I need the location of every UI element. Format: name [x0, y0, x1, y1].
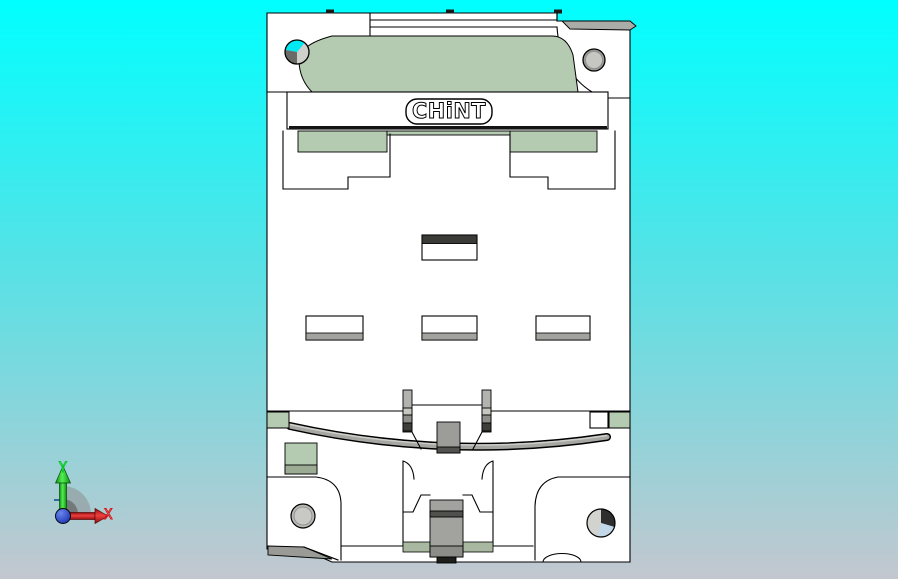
- axis-y-label: Y: [59, 460, 68, 476]
- contact-window-top: [422, 235, 477, 260]
- mounting-hole-bottom-right: [587, 509, 615, 537]
- armature-block: [437, 422, 460, 453]
- logo-band-groove: [289, 126, 607, 129]
- guide-post-left: [403, 390, 412, 432]
- side-tab-left: [267, 412, 289, 428]
- origin-ball: [56, 509, 71, 524]
- mounting-hole-top-right: [583, 49, 605, 71]
- side-slot-right: [590, 412, 608, 428]
- plunger: [430, 500, 463, 563]
- contact-window-right: [536, 316, 590, 340]
- bottom-green-strip-left: [403, 542, 430, 552]
- brand-text: CHiNT: [412, 99, 486, 123]
- contact-window-middle: [422, 316, 477, 340]
- guide-post-right: [482, 390, 491, 432]
- top-green-panel: [299, 36, 578, 92]
- cad-viewport[interactable]: CHiNT: [0, 0, 898, 579]
- mounting-hole-top-left: [285, 40, 309, 64]
- axis-x-label: X: [104, 507, 113, 523]
- side-tab-right: [609, 412, 630, 428]
- contact-window-left: [306, 316, 363, 340]
- bottom-green-strip-right: [463, 542, 493, 552]
- mounting-hole-bottom-left: [291, 504, 315, 528]
- contactor-model[interactable]: CHiNT: [267, 10, 636, 564]
- coil-window-left: [285, 443, 317, 474]
- top-right-rail: [562, 21, 636, 30]
